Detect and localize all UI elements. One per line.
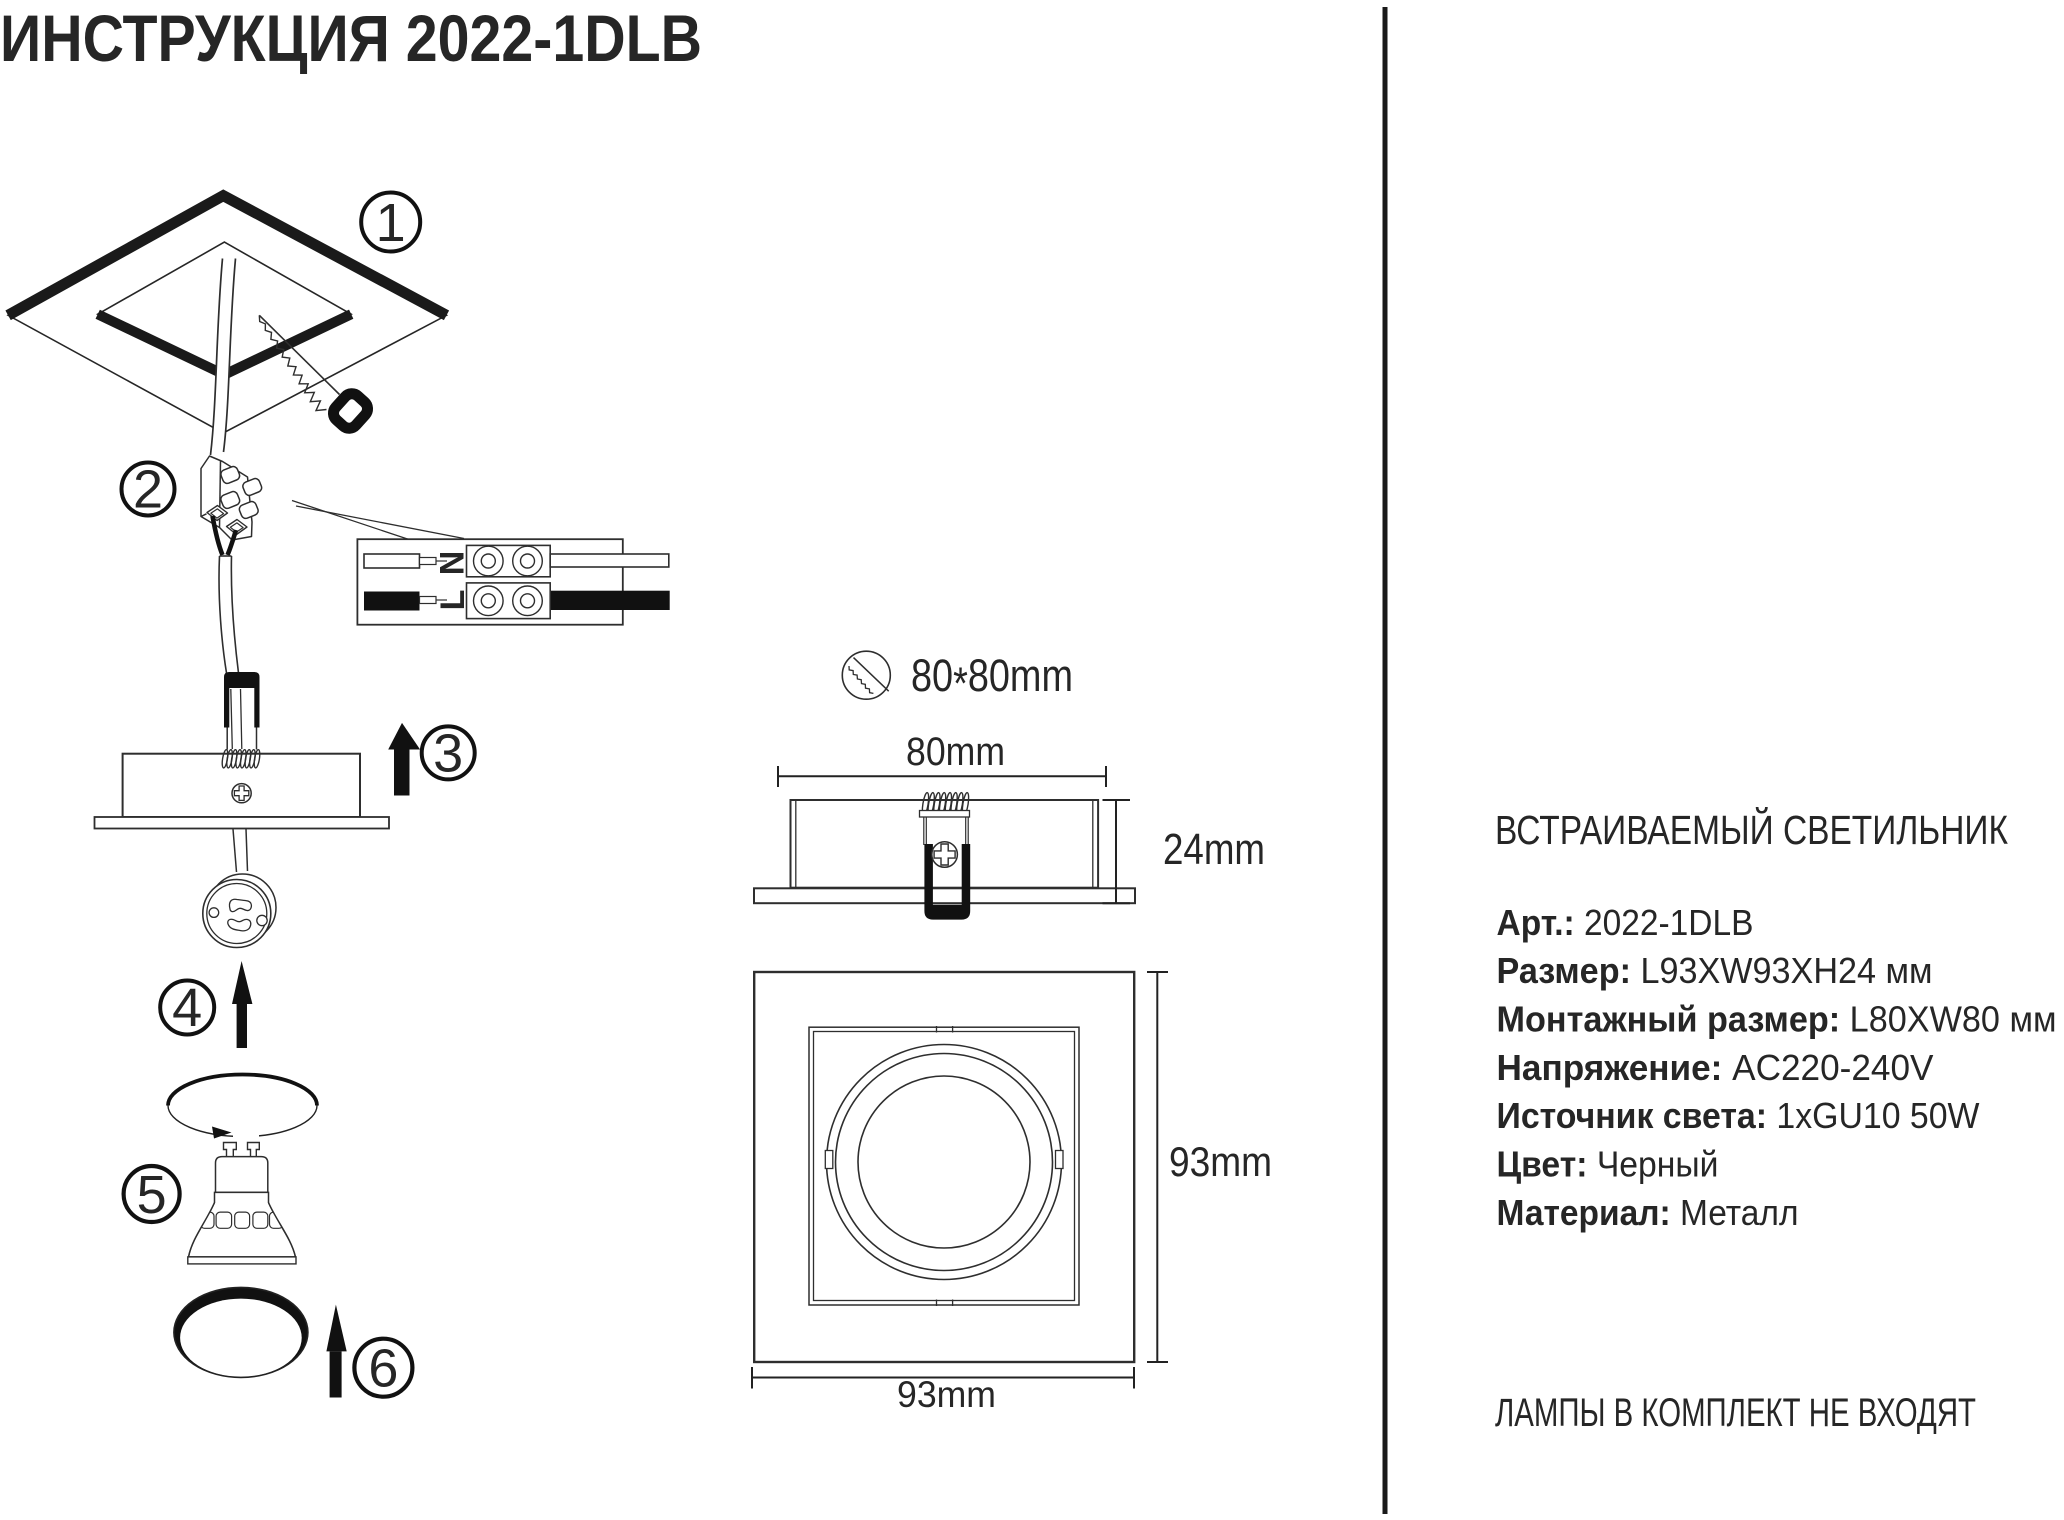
svg-text:93mm: 93mm <box>1169 1138 1272 1185</box>
svg-text:6: 6 <box>368 1339 398 1399</box>
svg-text:1: 1 <box>376 193 406 253</box>
svg-text:Напряжение: AC220-240V: Напряжение: AC220-240V <box>1497 1047 1934 1088</box>
svg-text:3: 3 <box>433 723 463 783</box>
svg-text:Источник света: 1xGU10 50W: Источник света: 1xGU10 50W <box>1497 1095 1980 1136</box>
svg-text:Арт.: 2022-1DLB: Арт.: 2022-1DLB <box>1497 902 1754 943</box>
svg-text:ВСТРАИВАЕМЫЙ СВЕТИЛЬНИК: ВСТРАИВАЕМЫЙ СВЕТИЛЬНИК <box>1495 807 2008 853</box>
svg-text:80*80mm: 80*80mm <box>911 650 1073 709</box>
svg-text:5: 5 <box>137 1165 167 1225</box>
svg-text:24mm: 24mm <box>1163 825 1265 874</box>
svg-text:ЛАМПЫ В КОМПЛЕКТ НЕ ВХОДЯТ: ЛАМПЫ В КОМПЛЕКТ НЕ ВХОДЯТ <box>1495 1391 1976 1435</box>
svg-text:Цвет: Черный: Цвет: Черный <box>1497 1144 1719 1185</box>
svg-text:Материал: Металл: Материал: Металл <box>1497 1192 1799 1233</box>
svg-text:N: N <box>432 551 470 576</box>
svg-text:93mm: 93mm <box>897 1374 996 1415</box>
svg-text:Монтажный размер: L80XW80 мм: Монтажный размер: L80XW80 мм <box>1497 999 2057 1040</box>
svg-text:Размер: L93XW93XH24 мм: Размер: L93XW93XH24 мм <box>1497 950 1933 991</box>
svg-text:4: 4 <box>172 978 202 1038</box>
svg-text:ИНСТРУКЦИЯ 2022-1DLB: ИНСТРУКЦИЯ 2022-1DLB <box>0 1 702 75</box>
svg-text:2: 2 <box>133 460 163 520</box>
svg-text:80mm: 80mm <box>906 730 1005 774</box>
